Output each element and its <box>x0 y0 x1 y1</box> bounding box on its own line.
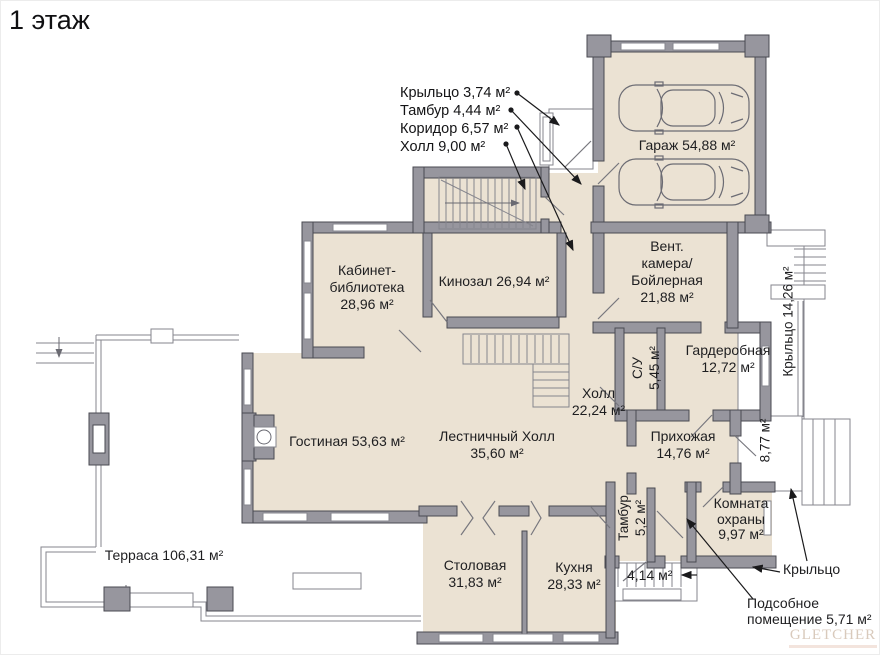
room-label-garage: Гараж 54,88 м² <box>601 137 773 154</box>
gletcher-logo-subline <box>789 645 877 648</box>
callout-tambour: Тамбур 4,44 м² <box>400 103 500 119</box>
room-label-komnata-ohrany: Комната охраны 9,97 м² <box>689 496 793 543</box>
room-label-tambur-52: Тамбур 5,2 м² <box>615 477 649 559</box>
label-steps-414: 4,14 м² <box>627 567 672 584</box>
callout-corridor: Коридор 6,57 м² <box>400 121 508 137</box>
room-label-holl: Холл 22,24 м² <box>546 385 651 419</box>
side-steps <box>802 419 850 505</box>
room-label-terrasa: Терраса 106,31 м² <box>61 547 267 564</box>
label-porch-bottom: Крыльцо <box>783 561 840 578</box>
room-label-kuhnya: Кухня 28,33 м² <box>513 559 635 593</box>
room-label-prihozhaya: Прихожая 14,76 м² <box>623 428 743 462</box>
page-title: 1 этаж <box>9 5 90 36</box>
floor-plan-page: 1 этаж Крыльцо 3,74 м² Тамбур 4,44 м² Ко… <box>0 0 880 655</box>
callout-hall: Холл 9,00 м² <box>400 139 485 155</box>
entry-porch <box>549 109 593 169</box>
room-label-gostinaya: Гостиная 53,63 м² <box>255 433 439 450</box>
terrace-columns <box>89 413 233 611</box>
room-label-kabinet: Кабинет- библиотека 28,96 м² <box>305 262 429 313</box>
gletcher-logo-text: GLETCHER <box>790 627 876 643</box>
room-label-garderobnaya: Гардеробная 12,72 м² <box>665 342 791 376</box>
room-label-kinozal: Кинозал 26,94 м² <box>419 273 569 290</box>
callout-porch: Крыльцо 3,74 м² <box>400 85 510 101</box>
gletcher-logo: GLETCHER <box>789 627 877 648</box>
room-label-vent: Вент. камера/ Бойлерная 21,88 м² <box>603 238 731 306</box>
label-podsobnoe: Подсобное помещение 5,71 м² <box>747 595 872 627</box>
room-label-porch-877: 8,77 м² <box>757 405 774 477</box>
